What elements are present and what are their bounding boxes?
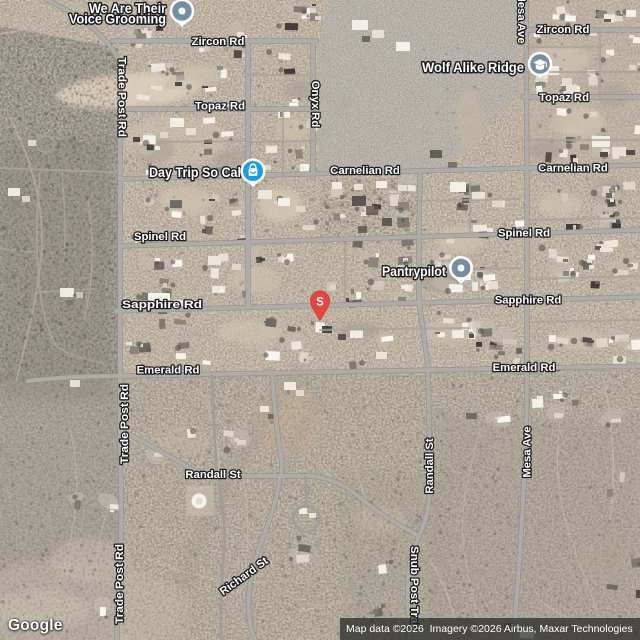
svg-text:Spinel Rd: Spinel Rd: [498, 228, 550, 240]
svg-text:Trade Post Rd: Trade Post Rd: [116, 57, 128, 137]
svg-text:Onyx Rd: Onyx Rd: [309, 81, 321, 128]
svg-text:Sapphire Rd: Sapphire Rd: [495, 295, 562, 307]
svg-text:Topaz Rd: Topaz Rd: [195, 101, 245, 113]
svg-text:Spinel Rd: Spinel Rd: [134, 231, 186, 243]
svg-text:Trade Post Rd: Trade Post Rd: [114, 544, 126, 624]
svg-text:Sapphire Rd: Sapphire Rd: [122, 299, 202, 311]
svg-text:Emerald Rd: Emerald Rd: [137, 365, 200, 377]
svg-text:Wolf Alike Ridge: Wolf Alike Ridge: [422, 60, 524, 75]
svg-text:Zircon Rd: Zircon Rd: [192, 36, 245, 48]
svg-text:Randall St: Randall St: [185, 469, 240, 481]
svg-text:Topaz Rd: Topaz Rd: [539, 92, 589, 104]
svg-text:Voice Grooming: Voice Grooming: [69, 12, 166, 27]
svg-text:S: S: [316, 296, 324, 308]
svg-text:Randall St: Randall St: [424, 438, 436, 493]
svg-text:Trade Post Rd: Trade Post Rd: [119, 384, 131, 464]
svg-text:Mesa Ave: Mesa Ave: [515, 0, 527, 44]
svg-text:Carnelian Rd: Carnelian Rd: [538, 163, 608, 175]
svg-text:Pantrypilot: Pantrypilot: [382, 264, 446, 279]
svg-text:Zircon Rd: Zircon Rd: [537, 24, 590, 36]
svg-text:Day Trip So Cal: Day Trip So Cal: [149, 165, 241, 180]
svg-text:Mesa Ave: Mesa Ave: [522, 426, 534, 477]
svg-text:Emerald Rd: Emerald Rd: [493, 362, 556, 374]
svg-text:Carnelian Rd: Carnelian Rd: [330, 165, 400, 177]
